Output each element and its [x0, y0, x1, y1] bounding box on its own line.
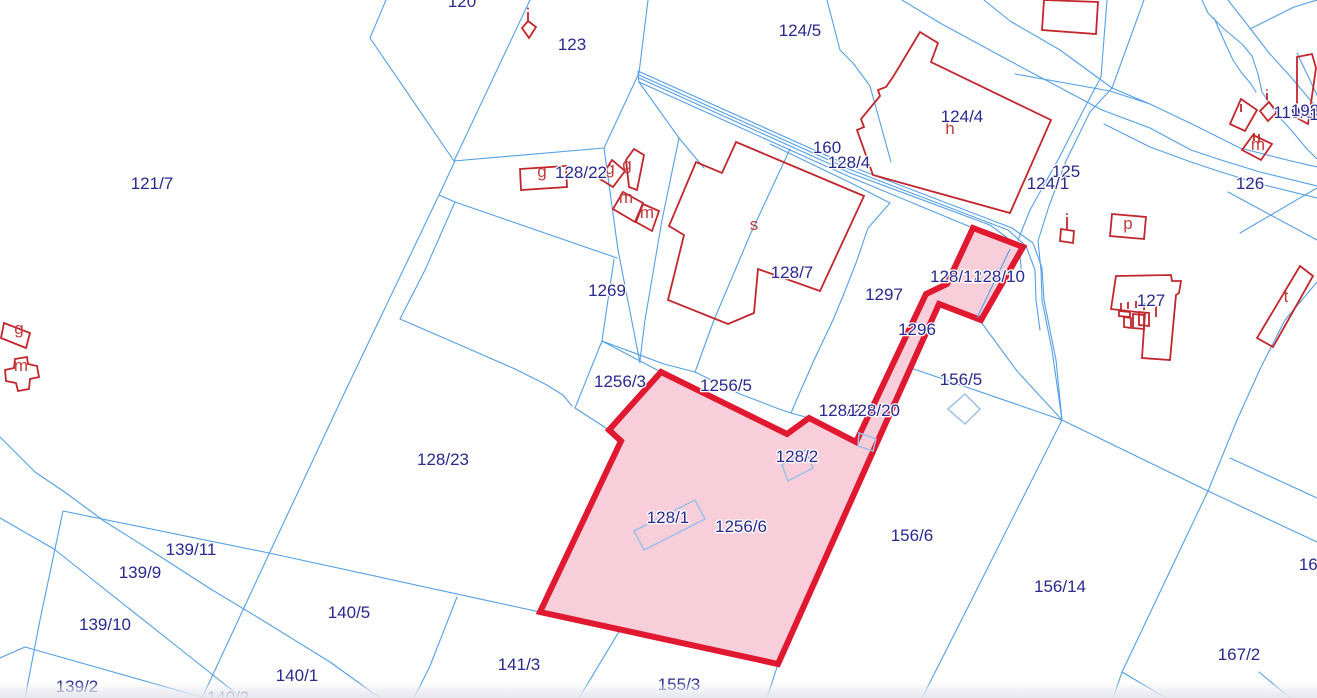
svg-text:139/9: 139/9	[119, 563, 162, 582]
svg-text:128/2: 128/2	[776, 447, 819, 466]
svg-text:167/2: 167/2	[1218, 645, 1261, 664]
svg-text:128/1: 128/1	[647, 508, 690, 527]
svg-text:m: m	[1251, 135, 1265, 154]
svg-text:128/22: 128/22	[555, 163, 607, 182]
svg-text:127: 127	[1137, 291, 1165, 310]
svg-text:p: p	[1123, 214, 1132, 233]
svg-text:128/4: 128/4	[828, 153, 871, 172]
svg-text:1256/5: 1256/5	[700, 376, 752, 395]
svg-text:m: m	[619, 188, 633, 207]
svg-text:126: 126	[1236, 174, 1264, 193]
svg-text:g: g	[14, 319, 23, 338]
svg-text:128/23: 128/23	[417, 450, 469, 469]
svg-text:140/5: 140/5	[328, 603, 371, 622]
svg-text:121/7: 121/7	[131, 174, 174, 193]
svg-text:139/10: 139/10	[79, 615, 131, 634]
svg-text:128/20: 128/20	[848, 401, 900, 420]
svg-text:124/4: 124/4	[941, 107, 984, 126]
svg-text:m: m	[640, 203, 654, 222]
svg-text:128/7: 128/7	[771, 263, 814, 282]
svg-text:124/1: 124/1	[1027, 174, 1070, 193]
svg-text:156/6: 156/6	[891, 526, 934, 545]
svg-text:m: m	[14, 356, 28, 375]
svg-text:s: s	[750, 215, 759, 234]
svg-text:156/14: 156/14	[1034, 577, 1086, 596]
svg-text:1297: 1297	[865, 285, 903, 304]
svg-text:1269: 1269	[588, 281, 626, 300]
svg-text:123: 123	[558, 35, 586, 54]
svg-text:156/5: 156/5	[940, 370, 983, 389]
svg-text:128/10: 128/10	[973, 267, 1025, 286]
svg-text:120: 120	[448, 0, 476, 11]
svg-text:t: t	[1284, 287, 1289, 306]
svg-text:124/5: 124/5	[779, 21, 822, 40]
svg-text:1: 1	[1309, 105, 1317, 124]
svg-text:g: g	[537, 162, 546, 181]
svg-text:g: g	[622, 155, 631, 174]
svg-text:1256/6: 1256/6	[715, 517, 767, 536]
svg-text:139/11: 139/11	[166, 540, 217, 559]
svg-text:1296: 1296	[898, 320, 936, 339]
svg-text:1256/3: 1256/3	[594, 372, 646, 391]
svg-text:141/3: 141/3	[498, 655, 541, 674]
svg-text:167: 167	[1299, 555, 1317, 574]
